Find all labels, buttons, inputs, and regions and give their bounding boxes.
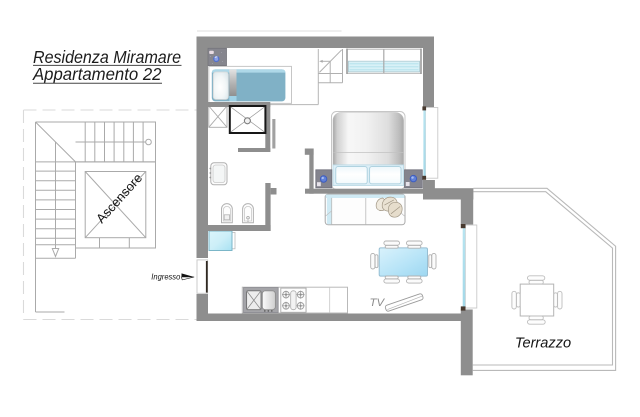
svg-text:TV: TV	[370, 297, 386, 309]
svg-text:Terrazzo: Terrazzo	[515, 336, 571, 352]
svg-text:Ingresso: Ingresso	[151, 271, 180, 281]
svg-text:Appartamento 22: Appartamento 22	[32, 64, 162, 84]
